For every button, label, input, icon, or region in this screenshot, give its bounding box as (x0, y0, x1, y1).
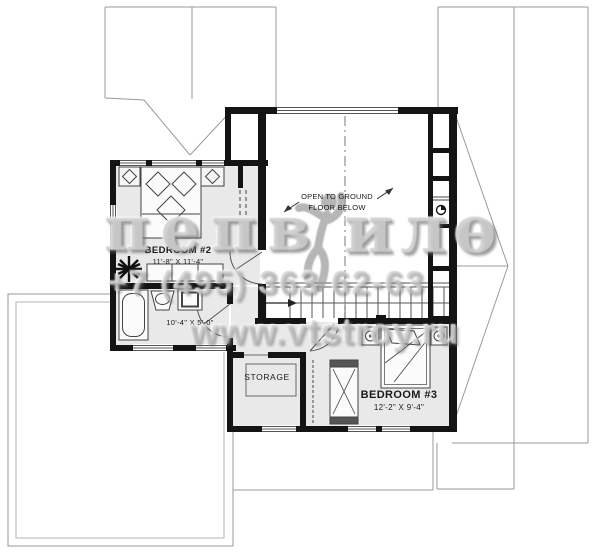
bed-symbol (141, 167, 201, 238)
stair-direction-arrow (288, 299, 297, 307)
dresser (147, 264, 223, 281)
plan-drawing (0, 0, 600, 560)
storage-label: STORAGE (244, 372, 290, 382)
bedroom3-label: BEDROOM #3 (361, 389, 438, 401)
open-area-label-line1: OPEN TO GROUND (301, 192, 373, 201)
wall-compartments (428, 114, 449, 330)
bedroom2-dimensions: 11'-8" X 11'-4" (153, 257, 204, 266)
bedroom2-label: BEDROOM #2 (145, 245, 212, 256)
bathtub-icon (119, 290, 148, 340)
open-area-label-line2: FLOOR BELOW (308, 203, 365, 212)
bedroom3-dimensions: 12'-2" X 9'-4" (374, 403, 424, 412)
bathroom-dimensions: 10'-4" X 5'-0" (166, 318, 213, 327)
floor-plan-canvas: BEDROOM #2 11'-8" X 11'-4" OPEN TO GROUN… (0, 0, 600, 560)
roof-outline (8, 7, 588, 546)
